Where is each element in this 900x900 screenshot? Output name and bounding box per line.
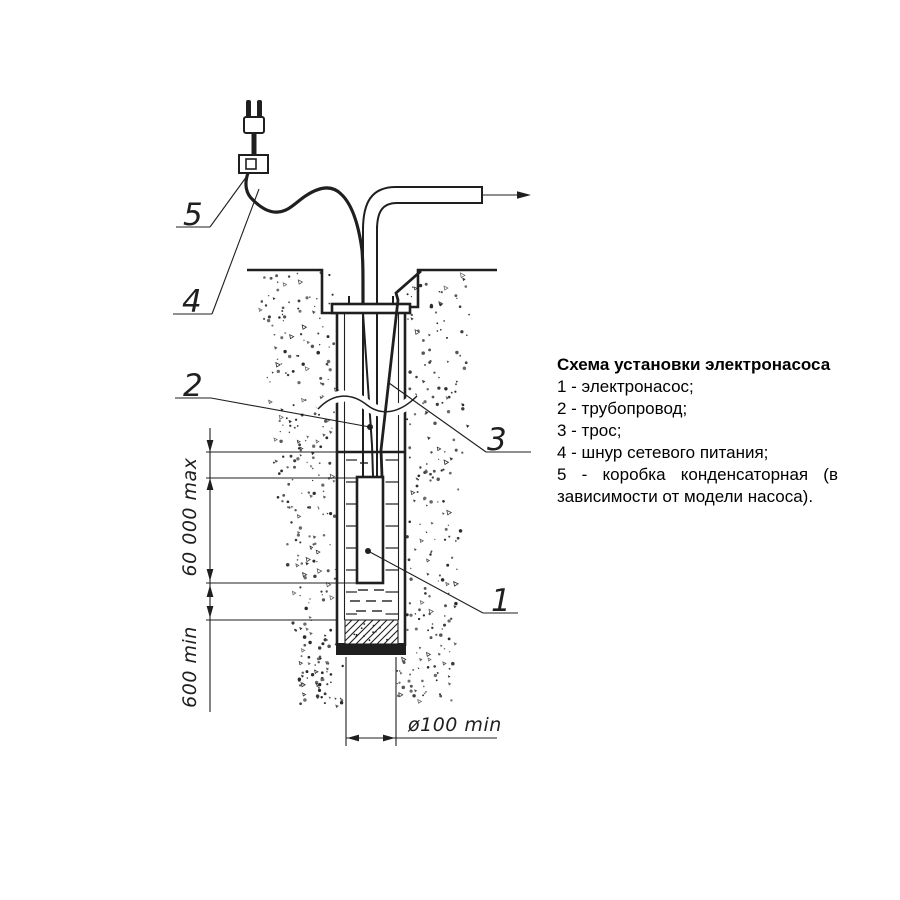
page: 60 000 max 600 min ø100 min 5 4 (0, 0, 900, 900)
power-plug-icon (244, 100, 264, 156)
sediment-hatch (320, 620, 422, 645)
safety-rope (381, 271, 421, 476)
flow-arrow-icon (517, 191, 531, 199)
legend-item-1: 1 - электронасос; (557, 376, 838, 398)
dim-diameter-label: ø100 min (407, 714, 502, 736)
pump-body (357, 477, 383, 583)
dim-clearance-label: 600 min (179, 626, 201, 708)
dimension-diameter: ø100 min (346, 657, 502, 746)
callout-3-label: 3 (487, 422, 507, 458)
capacitor-box (239, 155, 268, 173)
legend-item-5-line1: 5 - коробка конденсаторная (в (557, 464, 838, 486)
power-cable (246, 173, 373, 476)
legend-item-5-line2: зависимости от модели насоса). (557, 486, 838, 508)
legend: Схема установки электронасоса 1 - электр… (557, 354, 838, 508)
callout-4-label: 4 (182, 284, 202, 320)
legend-item-4: 4 - шнур сетевого питания; (557, 442, 838, 464)
legend-item-3: 3 - трос; (557, 420, 838, 442)
well-bottom (336, 643, 406, 655)
legend-title: Схема установки электронасоса (557, 354, 838, 376)
break-symbol (318, 396, 417, 412)
callout-5-label: 5 (183, 197, 203, 233)
callout-2-label: 2 (183, 368, 203, 404)
callout-box: 5 (176, 176, 247, 233)
callout-1-label: 1 (491, 583, 511, 619)
legend-item-2: 2 - трубопровод; (557, 398, 838, 420)
dim-immersion-label: 60 000 max (179, 457, 201, 576)
callout-pump: 1 (365, 548, 518, 619)
